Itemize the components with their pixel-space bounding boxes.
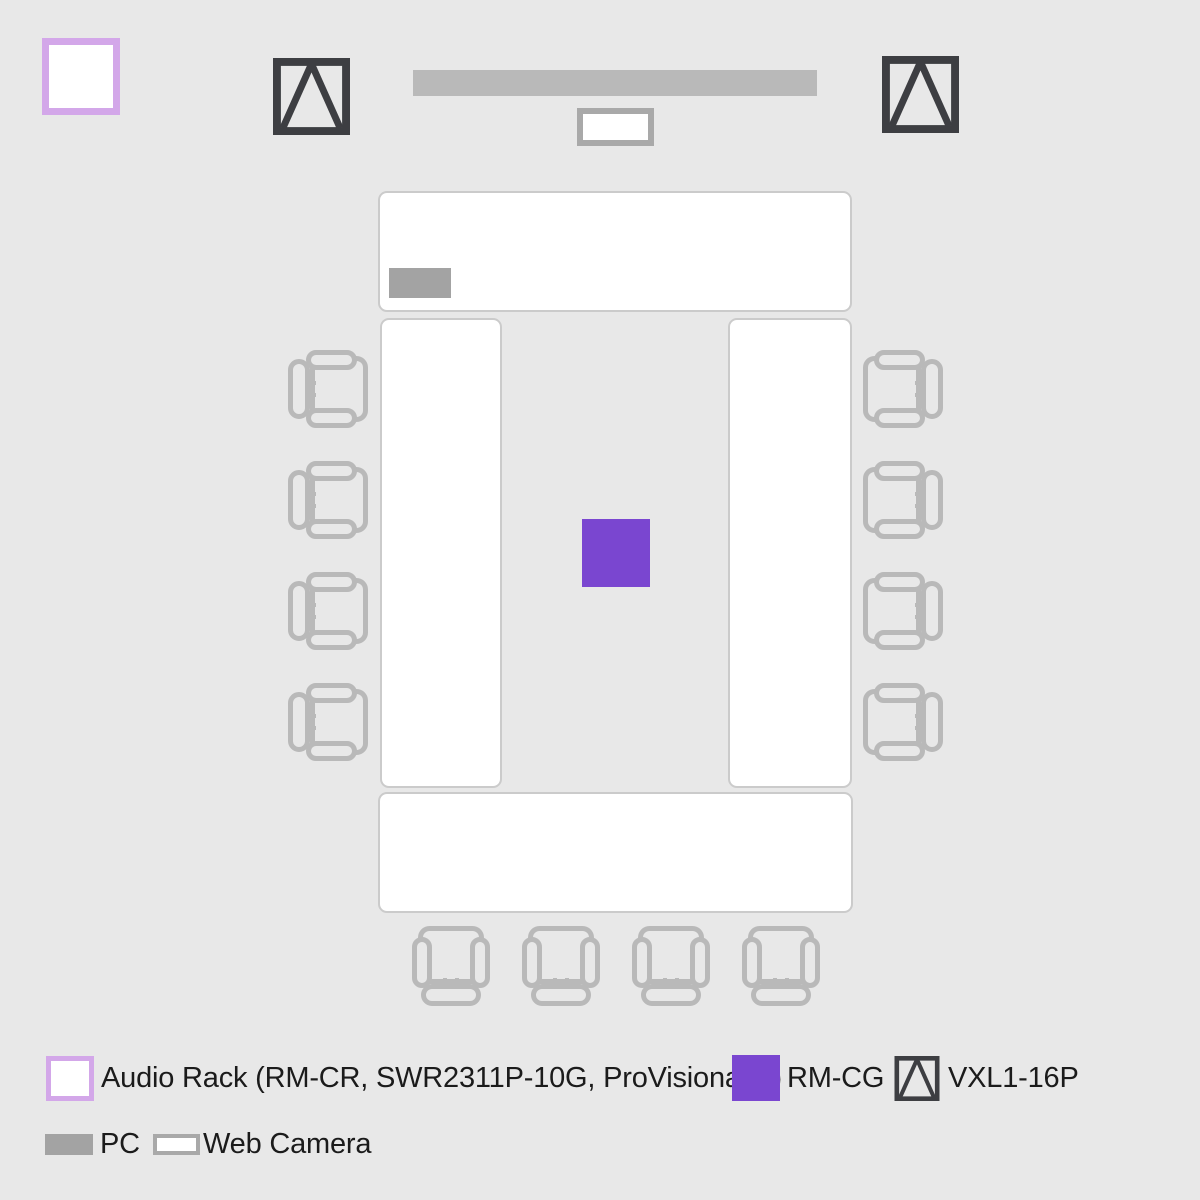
pc-swatch-icon	[45, 1134, 93, 1155]
chair-icon	[288, 572, 368, 650]
legend-label: RM-CG	[787, 1064, 884, 1093]
rm-cg-swatch-icon	[732, 1055, 780, 1101]
chair-icon	[863, 461, 943, 539]
legend-item-rm-cg: RM-CG	[732, 1055, 884, 1101]
chair-icon	[288, 683, 368, 761]
vxl1-16p-speaker-icon	[273, 58, 350, 135]
chair-icon	[742, 926, 820, 1006]
chair-icon	[412, 926, 490, 1006]
conference-table-right	[728, 318, 852, 788]
legend-label: Audio Rack (RM-CR, SWR2311P-10G, ProVisi…	[101, 1064, 782, 1093]
legend-label: VXL1-16P	[948, 1064, 1079, 1093]
chair-icon	[288, 350, 368, 428]
chair-icon	[522, 926, 600, 1006]
display-bar-icon	[413, 70, 817, 96]
legend-item-web-camera: Web Camera	[153, 1129, 371, 1159]
pc-icon	[389, 268, 451, 298]
vxl1-16p-speaker-icon	[882, 56, 959, 133]
legend-label: Web Camera	[203, 1130, 371, 1159]
conference-table-bottom	[378, 792, 853, 913]
legend-label: PC	[100, 1130, 140, 1159]
room-layout-diagram: Audio Rack (RM-CR, SWR2311P-10G, ProVisi…	[0, 0, 1200, 1200]
chair-icon	[863, 683, 943, 761]
chair-icon	[863, 350, 943, 428]
web-camera-swatch-icon	[153, 1134, 200, 1155]
legend-item-vxl1-16p: VXL1-16P	[893, 1055, 1079, 1101]
chair-icon	[863, 572, 943, 650]
legend-item-audio-rack: Audio Rack (RM-CR, SWR2311P-10G, ProVisi…	[46, 1055, 782, 1101]
rm-cg-ceiling-mic-icon	[582, 519, 650, 587]
web-camera-icon	[577, 108, 654, 146]
audio-rack-swatch-icon	[46, 1056, 94, 1101]
chair-icon	[632, 926, 710, 1006]
conference-table-left	[380, 318, 502, 788]
audio-rack-icon	[42, 38, 120, 115]
chair-icon	[288, 461, 368, 539]
legend-item-pc: PC	[45, 1129, 140, 1159]
vxl1-16p-swatch-icon	[893, 1056, 941, 1101]
